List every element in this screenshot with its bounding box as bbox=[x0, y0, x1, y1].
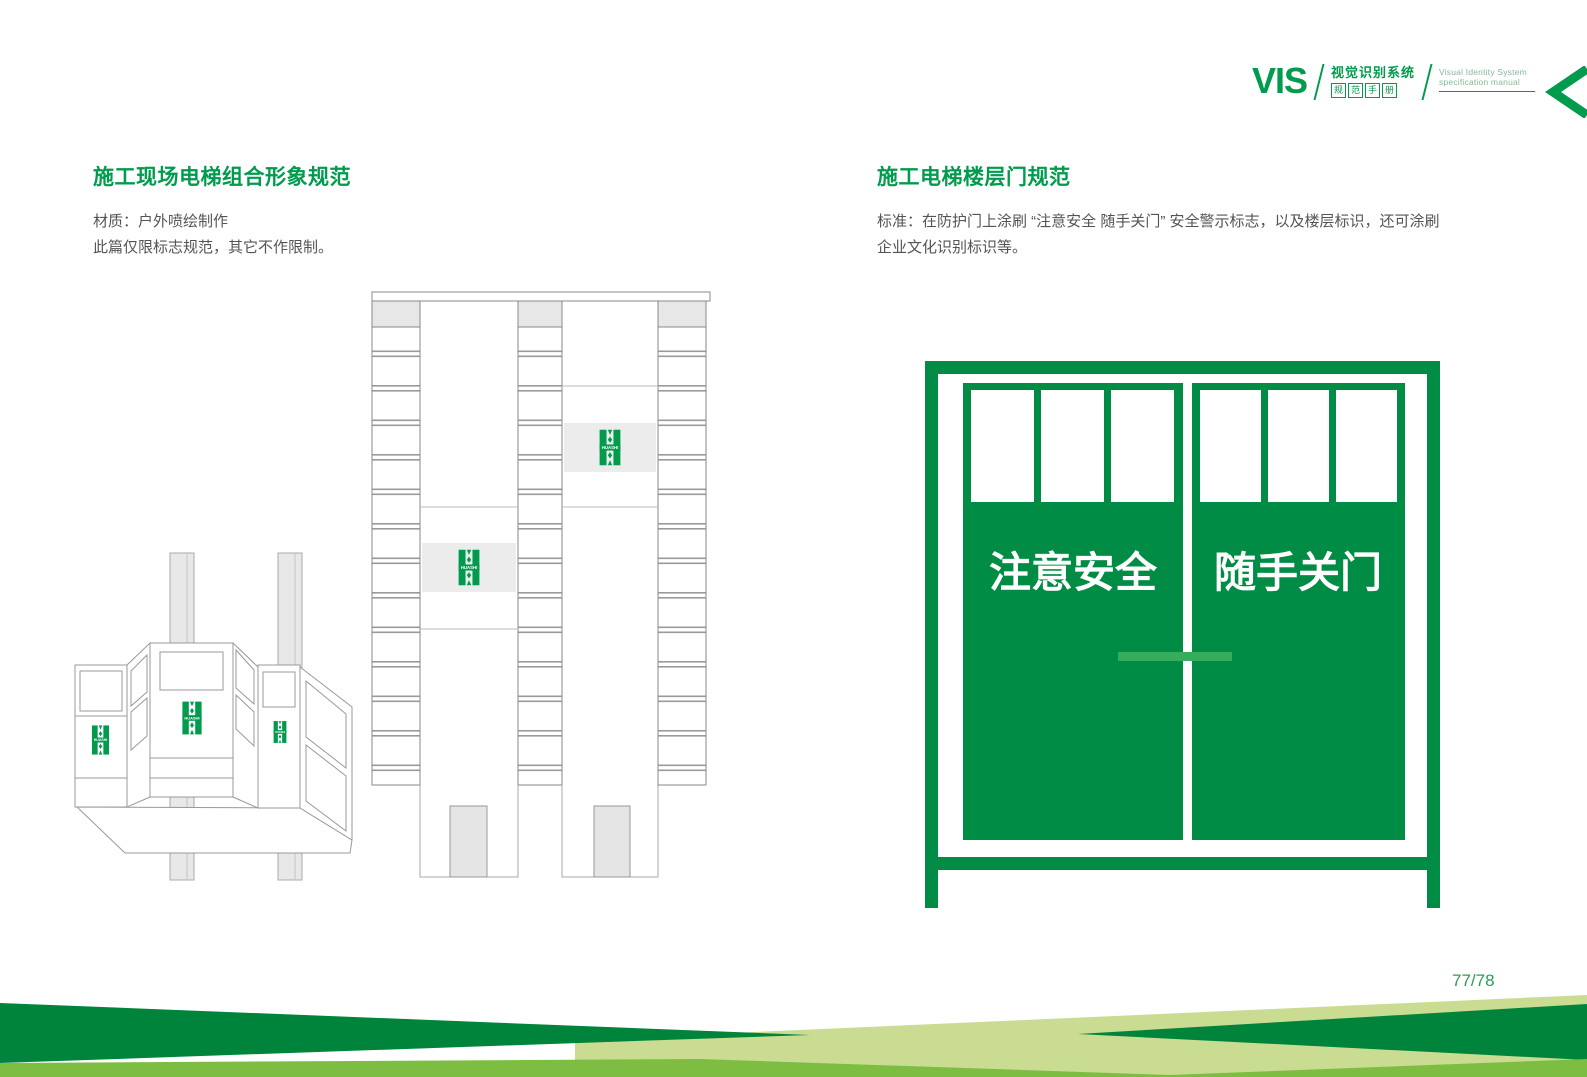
right-section-title: 施工电梯楼层门规范 bbox=[877, 161, 1071, 191]
elevator-cage-diagram: HUASHI bbox=[60, 540, 370, 885]
cn-box-char: 册 bbox=[1382, 83, 1397, 98]
vis-manual-page: VIS 视觉识别系统 规 范 手 册 Visual Identity Syste… bbox=[0, 0, 1587, 1077]
right-body-line1: 标准：在防护门上涂刷 “注意安全 随手关门” 安全警示标志，以及楼层标识，还可涂… bbox=[877, 209, 1537, 235]
vis-wordmark: VIS bbox=[1252, 64, 1307, 98]
floor-door-diagram: 注意安全 随手关门 bbox=[925, 361, 1440, 909]
footer-graphic bbox=[0, 975, 1587, 1077]
tower2-door bbox=[594, 806, 630, 877]
cn-box-char: 规 bbox=[1331, 83, 1346, 98]
door-window bbox=[1268, 390, 1329, 502]
header-divider bbox=[1313, 64, 1324, 100]
cn-box-char: 手 bbox=[1365, 83, 1380, 98]
door-frame-left-post bbox=[925, 866, 938, 908]
vis-en-line2: specification manual bbox=[1439, 77, 1535, 87]
door-window bbox=[1200, 390, 1261, 502]
left-section-body: 材质：户外喷绘制作 此篇仅限标志规范，其它不作限制。 bbox=[93, 209, 333, 261]
cage-left-panel bbox=[75, 665, 127, 807]
door-window bbox=[971, 390, 1034, 502]
vis-cn-line2: 规 范 手 册 bbox=[1331, 83, 1415, 98]
cn-box-char: 范 bbox=[1348, 83, 1363, 98]
towers-top-rail bbox=[372, 292, 710, 301]
door-warning-left: 注意安全 bbox=[989, 549, 1158, 596]
door-window bbox=[1111, 390, 1174, 502]
cage-left-angled-wall bbox=[127, 643, 150, 807]
door-frame-right-post bbox=[1427, 866, 1440, 908]
door-handle bbox=[1118, 652, 1232, 661]
door-warning-right: 随手关门 bbox=[1214, 549, 1382, 596]
door-window bbox=[1336, 390, 1397, 502]
vis-en-line1: Visual Identity System bbox=[1439, 67, 1535, 77]
right-body-line2: 企业文化识别标识等。 bbox=[877, 235, 1537, 261]
cage-front-panel bbox=[150, 643, 233, 797]
elevator-towers-diagram: HUASHI bbox=[370, 290, 714, 882]
cage-right-angled-wall bbox=[233, 643, 258, 808]
chevron-left-icon bbox=[1545, 66, 1587, 118]
header-divider bbox=[1422, 64, 1433, 100]
vis-cn-line1: 视觉识别系统 bbox=[1331, 66, 1415, 80]
left-body-line1: 材质：户外喷绘制作 bbox=[93, 209, 333, 235]
vis-english-block: Visual Identity System specification man… bbox=[1439, 64, 1535, 92]
mast-column bbox=[658, 301, 706, 785]
mast-column bbox=[518, 301, 562, 785]
vis-chinese-block: 视觉识别系统 规 范 手 册 bbox=[1331, 64, 1415, 98]
mast-column bbox=[372, 301, 420, 785]
left-body-line2: 此篇仅限标志规范，其它不作限制。 bbox=[93, 235, 333, 261]
header-underline bbox=[1439, 91, 1535, 92]
tower2-shaft bbox=[562, 292, 658, 877]
tower1-door bbox=[450, 806, 487, 877]
right-section-body: 标准：在防护门上涂刷 “注意安全 随手关门” 安全警示标志，以及楼层标识，还可涂… bbox=[877, 209, 1537, 261]
door-window bbox=[1041, 390, 1104, 502]
vis-logo: VIS 视觉识别系统 规 范 手 册 Visual Identity Syste… bbox=[1252, 64, 1535, 100]
left-section-title: 施工现场电梯组合形象规范 bbox=[93, 161, 351, 191]
cage-right-panel bbox=[258, 665, 300, 808]
